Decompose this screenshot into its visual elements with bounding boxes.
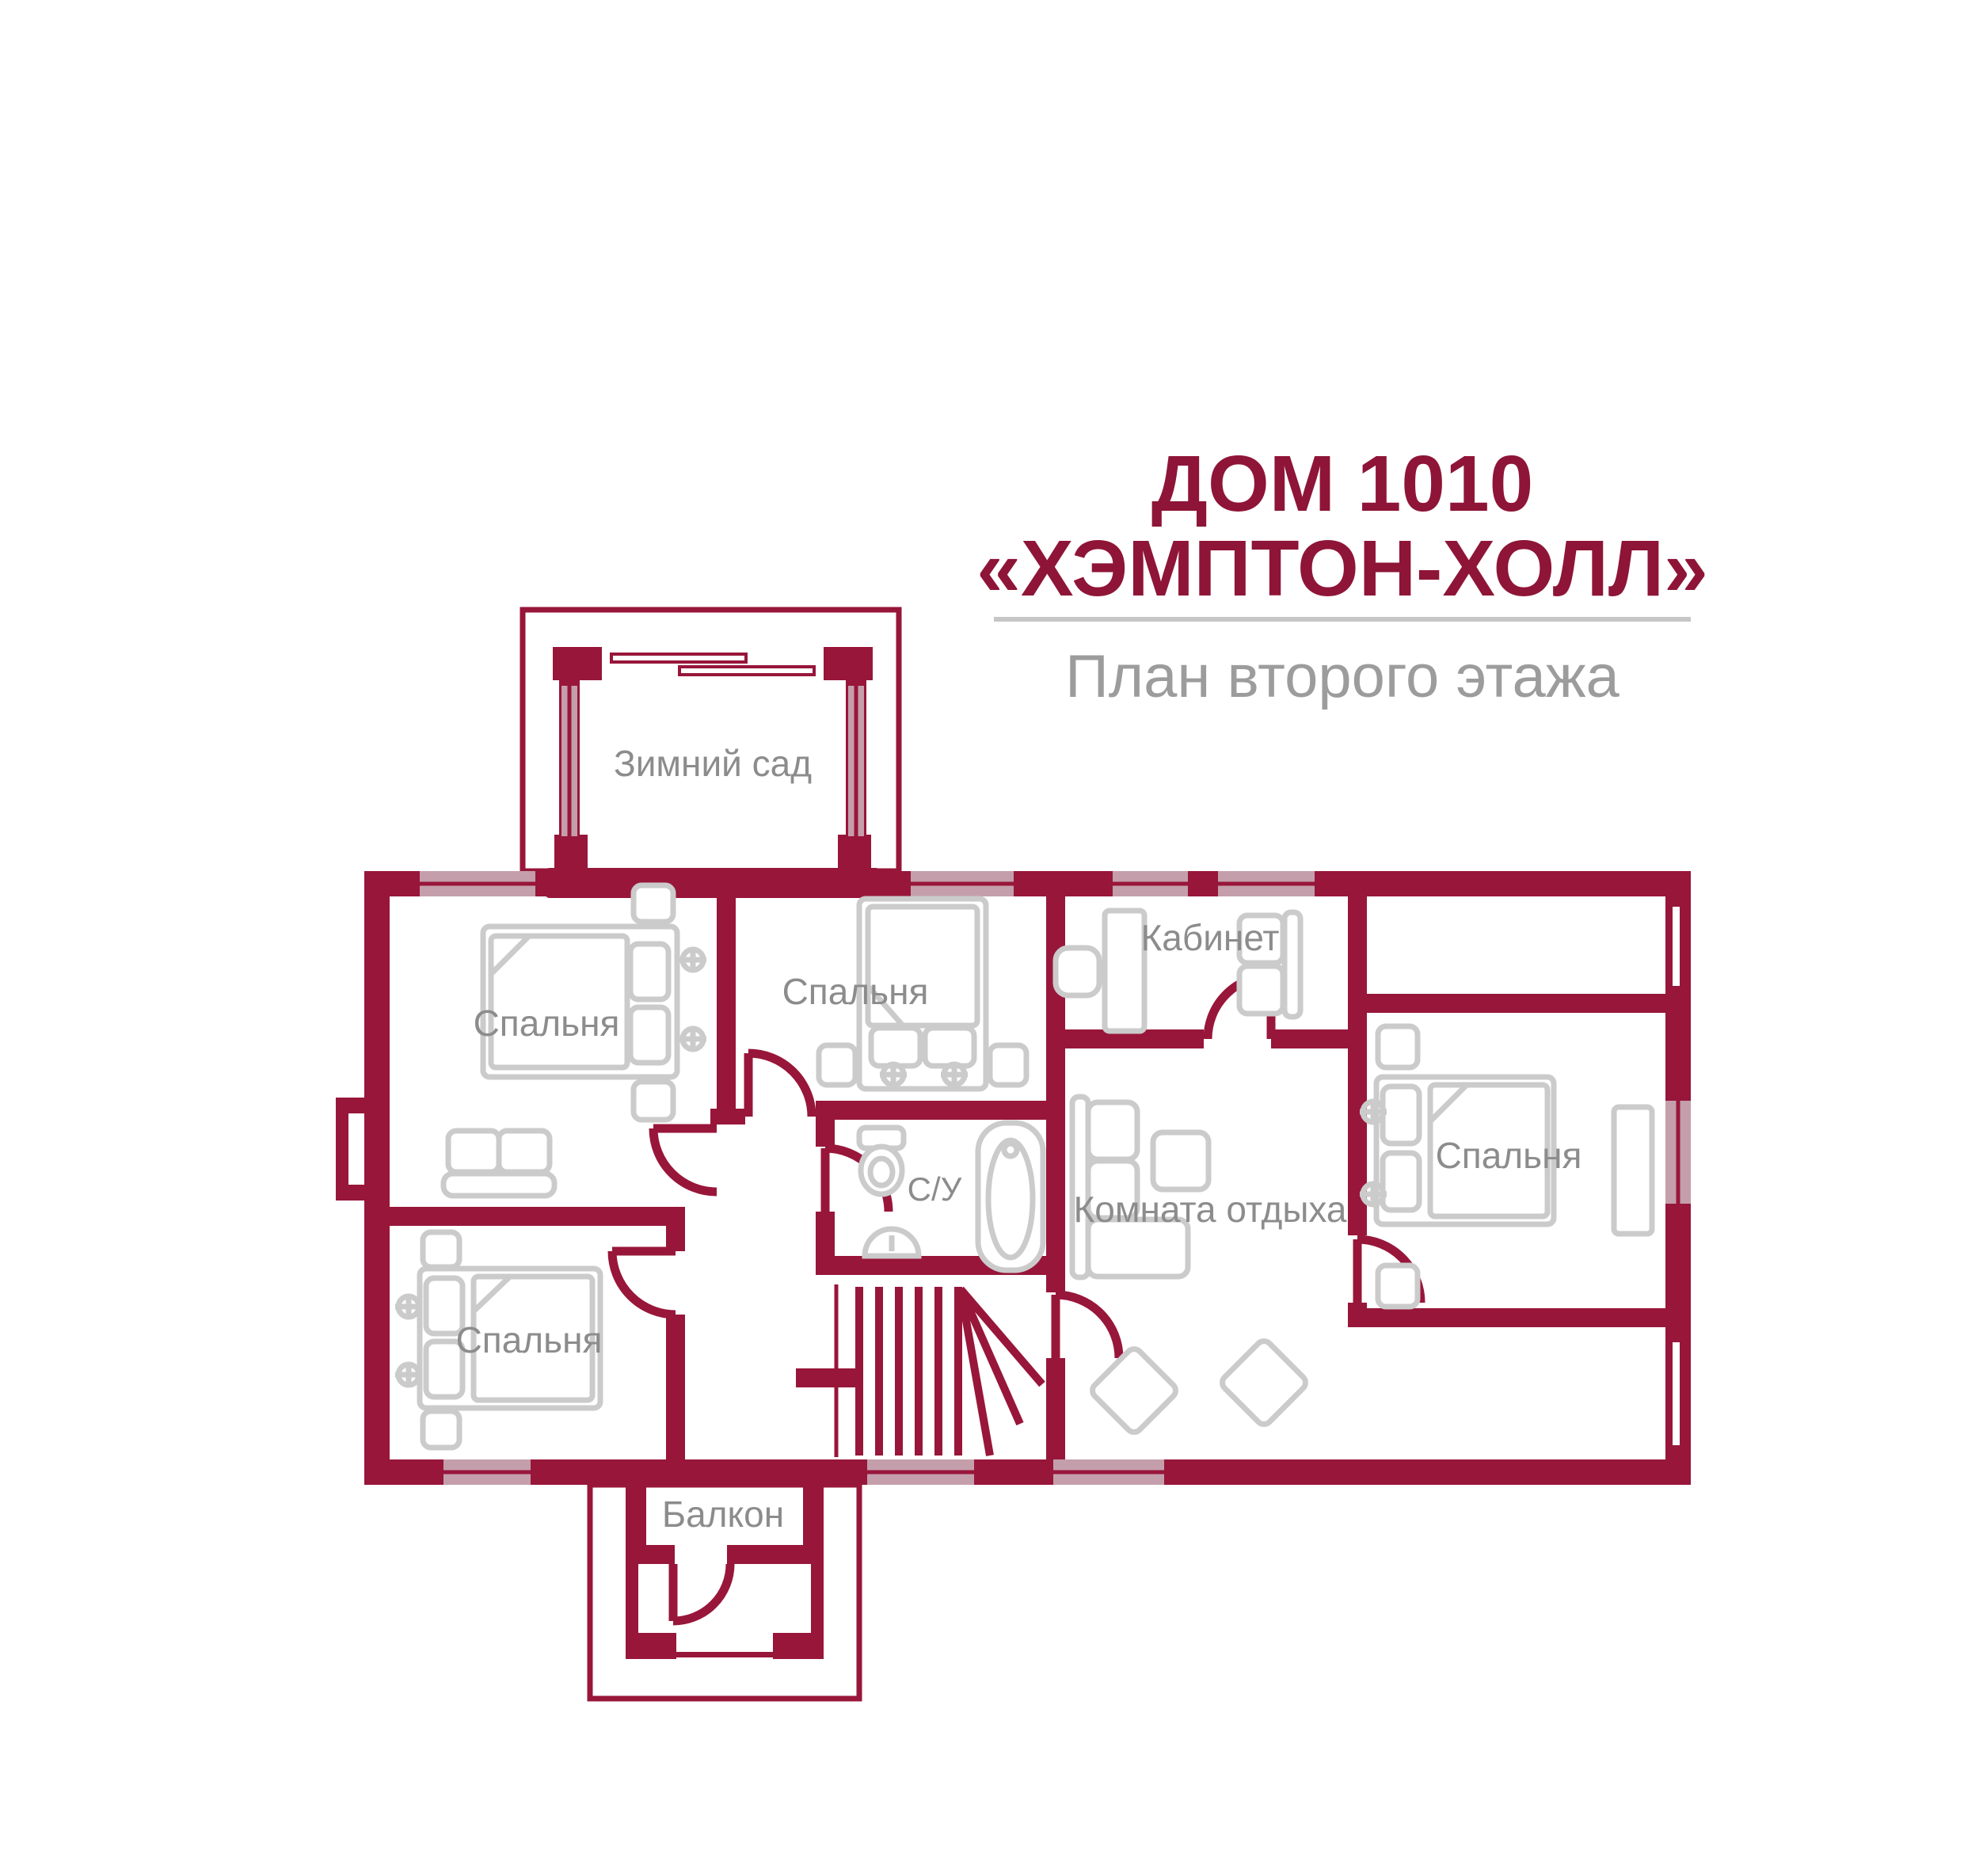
sliding-door-panel [611, 654, 746, 662]
desk-chair [1056, 948, 1099, 995]
toilet [859, 1128, 904, 1194]
desk [1105, 911, 1144, 1031]
door-bedroom-bottom-left [612, 1251, 676, 1315]
bathtub [978, 1123, 1043, 1270]
winter-garden: Зимний сад [523, 610, 899, 898]
sconce-icon [395, 1296, 422, 1317]
nightstand [990, 1045, 1026, 1085]
lounge-label: Комната отдыха [1074, 1189, 1347, 1230]
winter-garden-label: Зимний сад [614, 743, 812, 784]
staircase [836, 1284, 1042, 1457]
sink [865, 1229, 919, 1256]
wall-slit [1673, 1342, 1680, 1445]
floor-plan-canvas: ДОМ 1010 «ХЭМПТОН-ХОЛЛ» План второго эта… [0, 0, 1964, 1876]
nightstand [819, 1045, 855, 1085]
door-stair-hall [1056, 1295, 1119, 1358]
sconce-icon [679, 949, 706, 970]
wardrobe [1614, 1107, 1652, 1234]
study-label: Кабинет [1141, 917, 1280, 958]
door-balcony [673, 1564, 730, 1621]
sconce-icon [679, 1029, 706, 1049]
sconce-icon [395, 1364, 422, 1385]
nightstand [634, 1082, 673, 1120]
floor-cushion [1089, 1345, 1178, 1435]
bedroom-top-left-label: Спальня [474, 1003, 620, 1044]
sofa-top-left [443, 1131, 554, 1196]
nightstand [1378, 1026, 1418, 1067]
house-title-line2: «ХЭМПТОН-ХОЛЛ» [976, 524, 1707, 613]
side-table [1153, 1132, 1208, 1189]
floor-subtitle: План второго этажа [1065, 643, 1620, 710]
sliding-door-panel [679, 667, 814, 675]
balcony-label: Балкон [662, 1494, 784, 1535]
sconce-icon [1360, 1102, 1387, 1122]
door-bedroom-top-left [653, 1128, 717, 1192]
house-title-line1: ДОМ 1010 [1151, 440, 1534, 528]
wall-slit [1673, 907, 1680, 986]
sconce-icon [941, 1064, 968, 1085]
title-block: ДОМ 1010 «ХЭМПТОН-ХОЛЛ» План второго эта… [976, 440, 1707, 710]
floor-cushion [1219, 1338, 1308, 1427]
balcony: Балкон [590, 1485, 859, 1699]
floor-plan-page: ДОМ 1010 «ХЭМПТОН-ХОЛЛ» План второго эта… [0, 0, 1964, 1876]
nightstand [423, 1411, 459, 1448]
bedroom-right-label: Спальня [1436, 1135, 1582, 1176]
nightstand [634, 885, 673, 922]
sconce-icon [1360, 1184, 1387, 1204]
bedroom-bottom-left-label: Спальня [456, 1319, 603, 1360]
lounge-furniture [1072, 1097, 1309, 1436]
nightstand [423, 1232, 459, 1267]
bathroom-label: С/У [908, 1170, 962, 1208]
bedroom-top-middle-label: Спальня [782, 971, 929, 1012]
door-bedroom-top-middle [748, 1053, 812, 1117]
nightstand [1378, 1265, 1418, 1307]
sconce-icon [880, 1064, 907, 1085]
